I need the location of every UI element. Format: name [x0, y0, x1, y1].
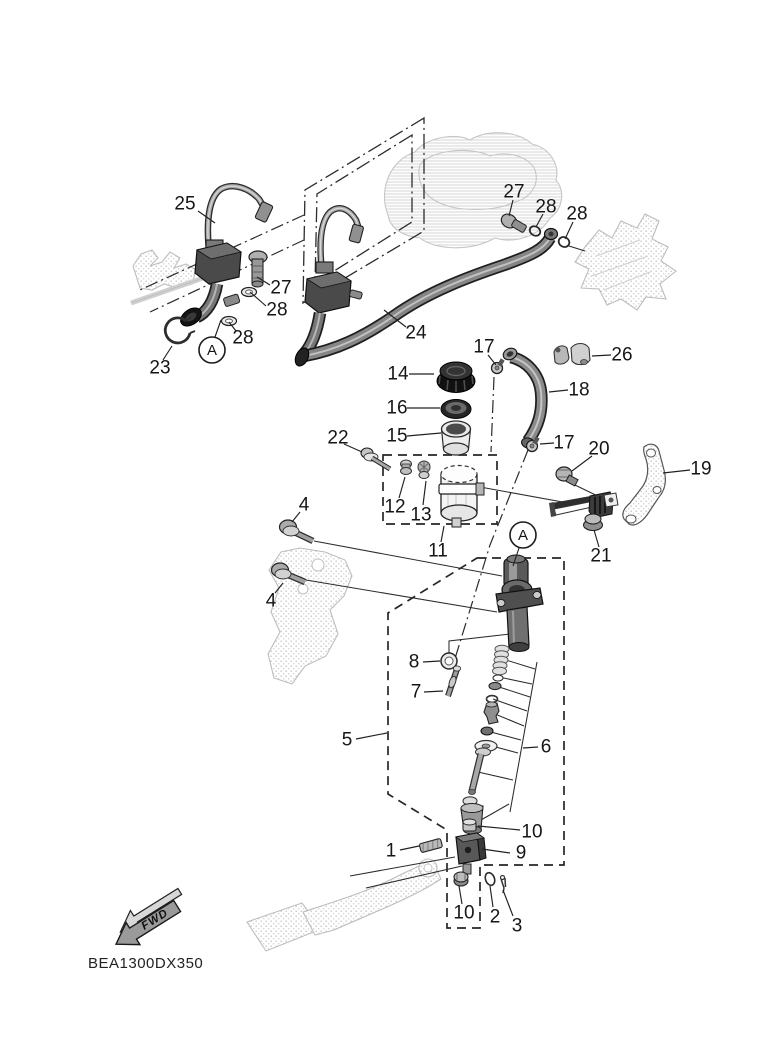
callout-leader-28 [250, 292, 266, 306]
part-callout-11: 11 [428, 541, 448, 562]
assembly-line [506, 660, 535, 669]
fwd-direction-arrow: FWD [105, 883, 193, 955]
part-callout-28: 28 [232, 328, 253, 349]
assembly-lines-layer [140, 215, 610, 888]
part-callout-20: 20 [588, 439, 609, 460]
callout-leader-10 [459, 886, 462, 904]
washer-2 [484, 871, 497, 886]
parts-diagram-page: FWD BEA1300DX350 25272828232427282817261… [0, 0, 770, 1064]
part-callout-27: 27 [270, 278, 291, 299]
part-callout-13: 13 [410, 505, 431, 526]
bolt-20 [556, 467, 578, 486]
part-callout-5: 5 [342, 730, 353, 751]
hose-switch-fitting [223, 294, 240, 307]
callout-leader-18 [549, 390, 568, 392]
washer-28-top-2 [557, 235, 571, 249]
kit-push-rod [469, 748, 491, 795]
part-callout-18: 18 [568, 380, 589, 401]
callout-leader-28 [565, 222, 573, 239]
locknut-10-lower [454, 872, 468, 886]
part-callout-21: 21 [590, 546, 611, 567]
assembly-line [481, 804, 509, 820]
assembly-line [350, 857, 455, 876]
part-callout-6: 6 [541, 737, 552, 758]
assembly-line [496, 686, 530, 697]
part-callout-12: 12 [384, 497, 405, 518]
tank-band-clamp [439, 484, 480, 494]
diaphragm-plate-16 [441, 400, 471, 419]
part-callout-25: 25 [174, 194, 195, 215]
part-callout-24: 24 [405, 323, 427, 344]
screw-22 [361, 448, 390, 469]
callout-leader-26 [592, 355, 611, 356]
part-callout-28: 28 [566, 204, 587, 225]
assembly-line [491, 377, 494, 452]
callout-leader-1 [400, 846, 419, 850]
part-callout-4: 4 [266, 591, 277, 612]
part-callout-15: 15 [386, 426, 407, 447]
kit-piston [484, 702, 499, 724]
callout-leader-21 [594, 530, 599, 547]
callout-leader-17 [540, 443, 554, 444]
part-callout-1: 1 [386, 841, 397, 862]
pin-7 [448, 666, 461, 696]
part-callout-9: 9 [516, 843, 527, 864]
reservoir-cap-14 [437, 362, 475, 393]
part-callout-2: 2 [490, 907, 501, 928]
grommet-12 [401, 460, 412, 475]
part-callout-19: 19 [690, 459, 711, 480]
diaphragm-15 [442, 421, 471, 455]
grommet-13 [418, 461, 430, 479]
washer-28-left-lower [222, 317, 237, 326]
kit-washer [493, 675, 503, 681]
view-marker-label-A: A [518, 527, 528, 544]
view-marker-label-A: A [207, 342, 217, 359]
callout-leader-19 [663, 470, 690, 473]
kit-cup-seal [481, 727, 493, 735]
exploded-parts-diagram-canvas: FWD BEA1300DX350 25272828232427282817261… [0, 0, 770, 1064]
clevis-pin-1 [419, 838, 443, 852]
part-callout-7: 7 [411, 682, 422, 703]
part-callout-23: 23 [149, 358, 170, 379]
hose-clamp-26 [554, 344, 590, 365]
assembly-line [569, 246, 585, 251]
reservoir-tank-11 [439, 466, 484, 528]
callout-leader-7 [424, 691, 443, 692]
part-callout-14: 14 [387, 364, 409, 385]
part-callout-3: 3 [512, 916, 523, 937]
kit-seal [489, 682, 501, 689]
master-cylinder-body [496, 555, 543, 652]
assembly-line [478, 772, 513, 780]
callout-leader-15 [407, 433, 441, 436]
callout-leader-8 [423, 661, 440, 662]
part-callout-28: 28 [266, 300, 287, 321]
pipe-25-fitting [255, 201, 273, 222]
part-callout-22: 22 [327, 428, 348, 449]
stay-bracket-19 [623, 444, 666, 525]
callout-leader-2 [490, 886, 493, 907]
callout-leader-5 [356, 733, 387, 739]
callout-leader-10 [478, 826, 520, 830]
callout-leader-13 [423, 481, 426, 505]
return-spring [493, 645, 510, 675]
figure-code: BEA1300DX350 [88, 955, 203, 972]
part-callout-8: 8 [409, 652, 420, 673]
part-callout-17: 17 [553, 433, 574, 454]
brake-pipe-right-assembly [304, 208, 364, 354]
callout-leader-3 [503, 890, 513, 916]
callout-leader-12 [399, 477, 405, 498]
assembly-line [510, 662, 537, 812]
callout-leader-6 [523, 747, 538, 748]
mount-bolt-4-upper [280, 520, 314, 541]
hose-clamp-17-upper [492, 358, 505, 373]
boot-cap-10-upper [463, 819, 476, 831]
assembly-line [499, 677, 532, 684]
stay-bar-21 [549, 492, 618, 531]
part-callout-10: 10 [521, 822, 542, 843]
part-callout-4: 4 [299, 495, 310, 516]
brake-caliper-ghost [575, 214, 676, 310]
brake-pedal-ghost [247, 859, 441, 951]
piston-repair-kit-6 [461, 645, 509, 834]
part-callout-27: 27 [503, 182, 524, 203]
part-callout-10: 10 [453, 903, 474, 924]
reservoir-hose-18 [501, 346, 541, 449]
part-callout-17: 17 [473, 337, 494, 358]
assembly-line [495, 714, 524, 726]
marker-leader-A [215, 320, 221, 337]
part-callout-16: 16 [386, 398, 407, 419]
callout-leader-9 [482, 849, 510, 853]
engine-ghost [384, 133, 561, 248]
kit-o-ring [487, 696, 498, 703]
part-callout-28: 28 [535, 197, 556, 218]
part-callout-26: 26 [611, 345, 632, 366]
clevis-joint-9 [456, 833, 486, 874]
